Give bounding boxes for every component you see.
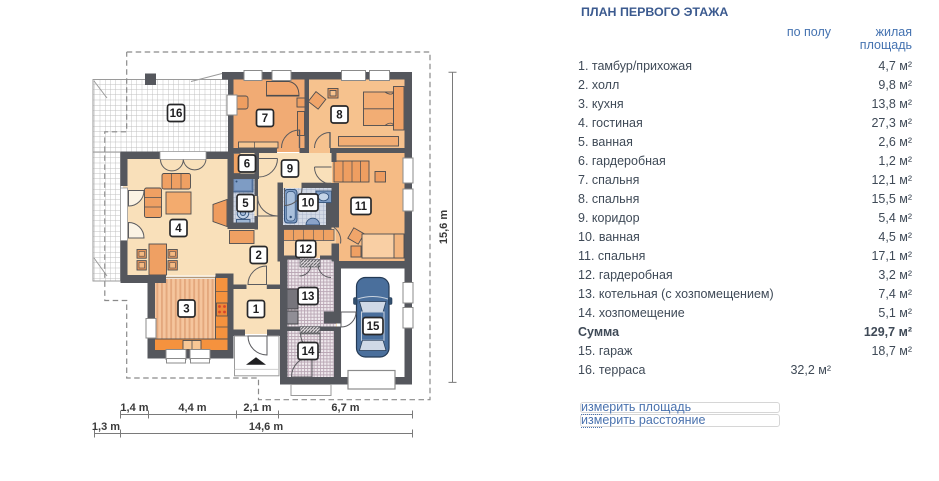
svg-text:8: 8 <box>336 110 343 122</box>
svg-text:11: 11 <box>355 201 368 213</box>
svg-text:1: 1 <box>253 304 260 316</box>
svg-text:3: 3 <box>183 304 189 316</box>
svg-text:14,6 m: 14,6 m <box>249 421 283 433</box>
svg-text:6,7 m: 6,7 m <box>331 402 359 414</box>
svg-text:16: 16 <box>170 108 183 120</box>
svg-text:4: 4 <box>175 223 182 235</box>
svg-text:13: 13 <box>302 291 315 303</box>
svg-text:2: 2 <box>255 250 261 262</box>
svg-text:7: 7 <box>262 113 268 125</box>
svg-text:10: 10 <box>302 198 315 210</box>
svg-text:6: 6 <box>244 159 250 171</box>
svg-text:4,4 m: 4,4 m <box>178 402 206 414</box>
svg-text:1,4 m: 1,4 m <box>120 402 148 414</box>
svg-text:12: 12 <box>299 244 312 256</box>
svg-text:14: 14 <box>302 346 315 358</box>
svg-text:2,1 m: 2,1 m <box>243 402 271 414</box>
svg-text:9: 9 <box>287 164 293 176</box>
svg-text:1,3 m: 1,3 m <box>92 421 120 433</box>
svg-text:15,6 m: 15,6 m <box>438 210 450 244</box>
svg-text:15: 15 <box>367 321 380 333</box>
svg-text:5: 5 <box>242 198 249 210</box>
